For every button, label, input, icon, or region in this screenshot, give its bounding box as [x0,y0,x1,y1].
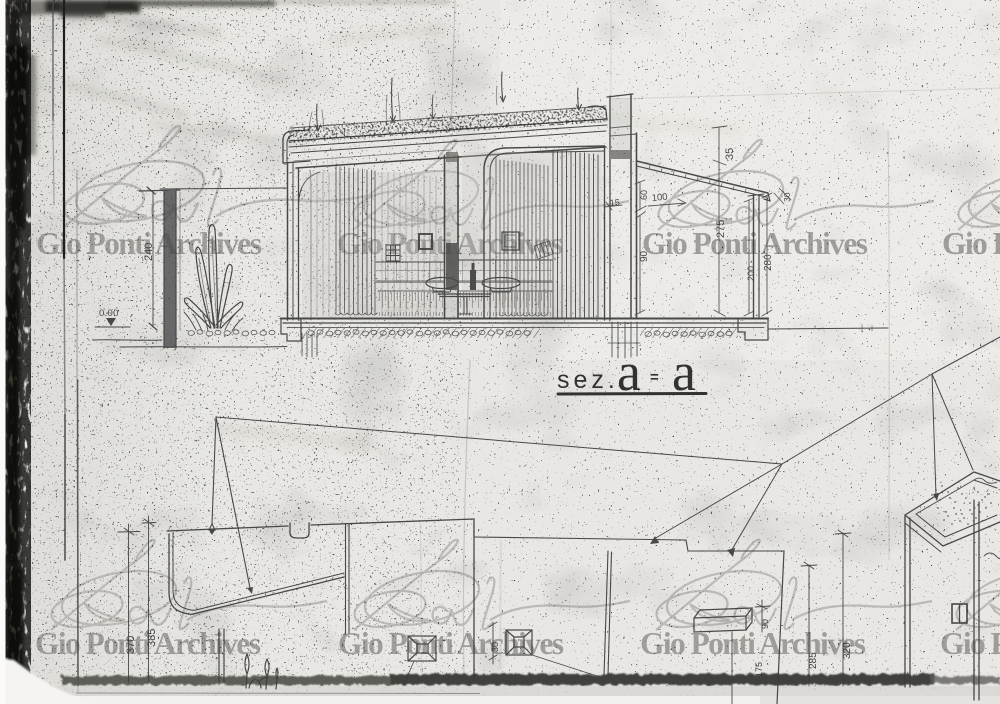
svg-text:275: 275 [715,220,727,238]
svg-text:15: 15 [609,197,620,208]
svg-text:280: 280 [763,254,774,271]
svg-text:60: 60 [639,190,649,200]
svg-text:175: 175 [754,662,764,677]
svg-text:370: 370 [125,636,137,654]
svg-text:90: 90 [639,250,650,262]
svg-text:=: = [650,369,659,386]
svg-text:30: 30 [782,192,792,202]
svg-text:90: 90 [760,619,770,629]
svg-text:320: 320 [842,642,853,659]
svg-text:200: 200 [746,266,756,281]
svg-text:100: 100 [651,192,668,204]
svg-text:35: 35 [724,148,736,160]
svg-text:240: 240 [143,243,155,261]
svg-text:285: 285 [808,652,819,669]
svg-text:385: 385 [146,629,158,647]
svg-text:0.00: 0.00 [99,308,119,319]
svg-text:sez.: sez. [557,366,619,394]
svg-text:30: 30 [490,642,500,652]
